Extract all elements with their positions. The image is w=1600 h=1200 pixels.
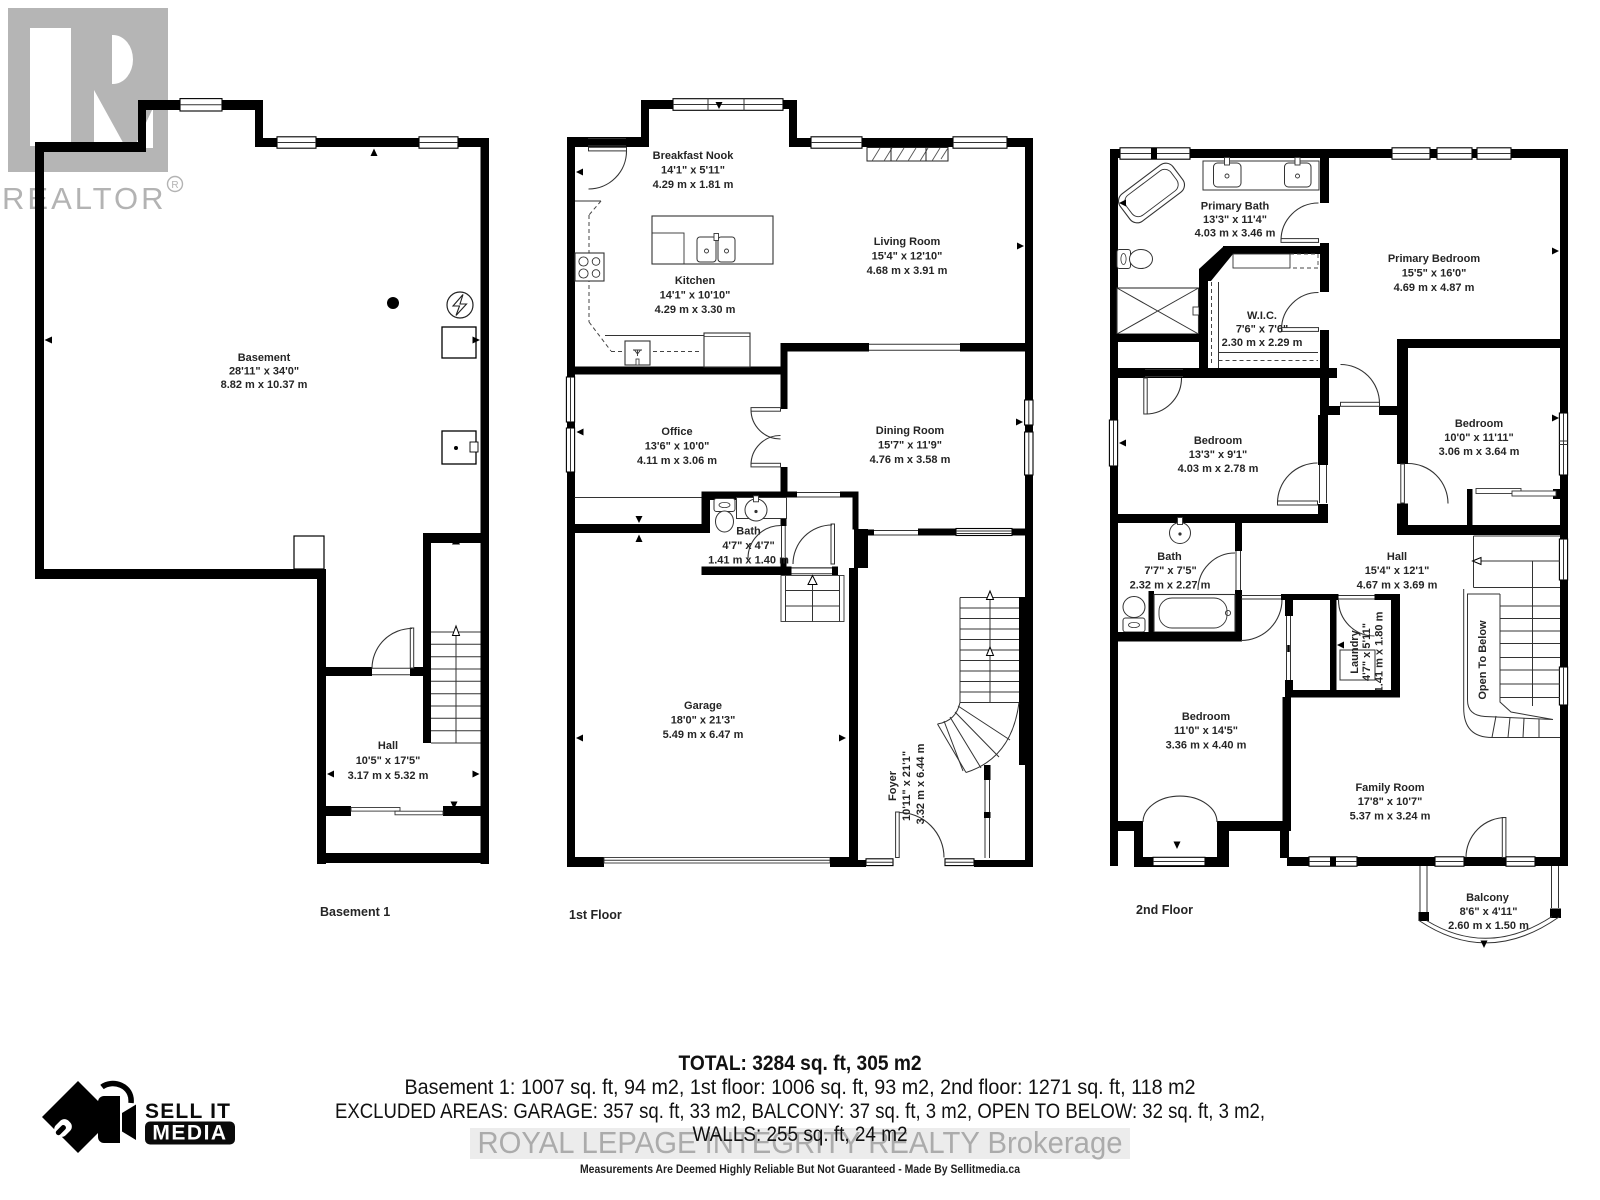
svg-text:Bath: Bath [736, 526, 761, 538]
svg-text:1.41 m x 1.40 m: 1.41 m x 1.40 m [708, 555, 789, 567]
svg-text:Kitchen: Kitchen [675, 275, 716, 287]
svg-text:17'8" x 10'7": 17'8" x 10'7" [1358, 796, 1423, 808]
svg-text:4.76 m x 3.58 m: 4.76 m x 3.58 m [870, 454, 951, 466]
svg-text:4.69 m x 4.87 m: 4.69 m x 4.87 m [1394, 282, 1475, 294]
svg-text:4.29 m x 3.30 m: 4.29 m x 3.30 m [655, 304, 736, 316]
svg-text:2.30 m x 2.29 m: 2.30 m x 2.29 m [1222, 337, 1303, 349]
svg-text:Open To Below: Open To Below [1477, 620, 1489, 700]
svg-text:10'0" x 11'11": 10'0" x 11'11" [1444, 432, 1514, 444]
svg-text:3.17 m x 5.32 m: 3.17 m x 5.32 m [348, 770, 429, 782]
svg-text:1.41 m x 1.80 m: 1.41 m x 1.80 m [1374, 611, 1386, 692]
svg-text:Dining Room: Dining Room [876, 425, 945, 437]
svg-text:3.36 m x 4.40 m: 3.36 m x 4.40 m [1166, 740, 1247, 752]
svg-text:W.I.C.: W.I.C. [1247, 310, 1277, 322]
svg-text:4.67 m x 3.69 m: 4.67 m x 3.69 m [1357, 580, 1438, 592]
svg-text:7'7" x 7'5": 7'7" x 7'5" [1144, 565, 1196, 577]
svg-text:MEDIA: MEDIA [152, 1122, 227, 1145]
svg-text:Bedroom: Bedroom [1455, 418, 1504, 430]
svg-text:Primary Bedroom: Primary Bedroom [1388, 253, 1481, 265]
svg-text:11'0" x 14'5": 11'0" x 14'5" [1174, 725, 1238, 737]
svg-text:1st Floor: 1st Floor [569, 908, 622, 922]
svg-text:14'1" x 5'11": 14'1" x 5'11" [661, 165, 725, 177]
svg-text:5.49 m x 6.47 m: 5.49 m x 6.47 m [663, 729, 744, 741]
svg-text:R: R [171, 180, 178, 191]
svg-text:10'5" x 17'5": 10'5" x 17'5" [356, 755, 421, 767]
svg-text:2nd Floor: 2nd Floor [1136, 903, 1193, 917]
svg-text:Hall: Hall [1387, 551, 1407, 563]
svg-text:Primary Bath: Primary Bath [1201, 201, 1270, 213]
svg-text:3.32 m x 6.44 m: 3.32 m x 6.44 m [915, 743, 927, 824]
svg-text:Measurements Are Deemed Highly: Measurements Are Deemed Highly Reliable … [580, 1164, 1021, 1176]
svg-text:8'6" x 4'11": 8'6" x 4'11" [1460, 906, 1518, 918]
svg-text:Basement: Basement [238, 352, 291, 364]
svg-text:14'1" x 10'10": 14'1" x 10'10" [660, 290, 731, 302]
svg-text:SELL IT: SELL IT [145, 1100, 231, 1123]
svg-text:13'3" x 9'1": 13'3" x 9'1" [1189, 449, 1247, 461]
svg-text:10'11" x 21'1": 10'11" x 21'1" [901, 751, 913, 821]
svg-text:WALLS: 255 sq. ft, 24 m2: WALLS: 255 sq. ft, 24 m2 [693, 1123, 908, 1146]
svg-text:Foyer: Foyer [887, 770, 899, 801]
svg-text:EXCLUDED AREAS: GARAGE: 357 sq: EXCLUDED AREAS: GARAGE: 357 sq. ft, 33 m… [335, 1100, 1265, 1123]
svg-text:4.03 m x 2.78 m: 4.03 m x 2.78 m [1178, 463, 1259, 475]
svg-text:4.68 m x 3.91 m: 4.68 m x 3.91 m [867, 265, 948, 277]
svg-text:7'6" x 7'6": 7'6" x 7'6" [1236, 324, 1288, 336]
svg-text:3.06 m x 3.64 m: 3.06 m x 3.64 m [1439, 446, 1520, 458]
svg-text:Family Room: Family Room [1355, 782, 1424, 794]
svg-text:15'7" x 11'9": 15'7" x 11'9" [878, 440, 942, 452]
svg-text:Garage: Garage [684, 700, 722, 712]
svg-text:Balcony: Balcony [1466, 892, 1510, 904]
svg-text:Bedroom: Bedroom [1194, 435, 1243, 447]
svg-text:4'7" x 4'7": 4'7" x 4'7" [722, 540, 774, 552]
svg-text:13'3" x 11'4": 13'3" x 11'4" [1203, 214, 1267, 226]
svg-text:TOTAL: 3284 sq. ft, 305 m2: TOTAL: 3284 sq. ft, 305 m2 [679, 1052, 922, 1075]
svg-text:4.29 m x 1.81 m: 4.29 m x 1.81 m [653, 179, 734, 191]
svg-text:4.11 m x 3.06 m: 4.11 m x 3.06 m [637, 455, 717, 467]
svg-text:Bedroom: Bedroom [1182, 711, 1231, 723]
svg-text:5.37 m x 3.24 m: 5.37 m x 3.24 m [1350, 811, 1431, 823]
svg-text:Office: Office [661, 426, 692, 438]
svg-text:13'6" x 10'0": 13'6" x 10'0" [645, 441, 710, 453]
svg-text:4'7" x 5'11": 4'7" x 5'11" [1361, 623, 1373, 681]
svg-text:8.82 m x 10.37 m: 8.82 m x 10.37 m [221, 379, 308, 391]
svg-text:Bath: Bath [1157, 551, 1182, 563]
svg-text:Laundry: Laundry [1349, 629, 1361, 673]
svg-text:18'0" x 21'3": 18'0" x 21'3" [671, 715, 736, 727]
svg-text:Basement 1: Basement 1 [320, 905, 390, 919]
svg-text:Basement 1: 1007 sq. ft, 94 m2: Basement 1: 1007 sq. ft, 94 m2, 1st floo… [405, 1076, 1196, 1099]
svg-text:15'5" x 16'0": 15'5" x 16'0" [1402, 268, 1467, 280]
svg-text:28'11" x 34'0": 28'11" x 34'0" [229, 366, 299, 378]
svg-text:Living Room: Living Room [874, 236, 941, 248]
svg-text:2.60 m x 1.50 m: 2.60 m x 1.50 m [1448, 920, 1529, 932]
svg-text:15'4" x 12'10": 15'4" x 12'10" [872, 251, 943, 263]
svg-text:Hall: Hall [378, 740, 398, 752]
svg-text:Breakfast Nook: Breakfast Nook [653, 150, 735, 162]
svg-text:4.03 m x 3.46 m: 4.03 m x 3.46 m [1195, 228, 1276, 240]
svg-text:15'4" x 12'1": 15'4" x 12'1" [1365, 565, 1430, 577]
svg-text:REALTOR: REALTOR [2, 181, 167, 216]
